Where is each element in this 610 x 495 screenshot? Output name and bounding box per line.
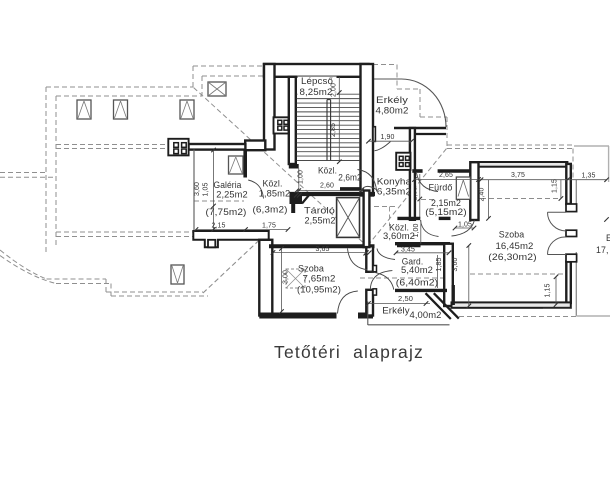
svg-text:2,50: 2,50 [398,296,413,303]
svg-text:E: E [606,233,610,243]
svg-text:4,00m2: 4,00m2 [410,310,442,320]
svg-text:1,15: 1,15 [545,283,552,297]
svg-text:7,65m2: 7,65m2 [303,274,336,284]
svg-text:2,00: 2,00 [331,83,338,97]
svg-text:2,60: 2,60 [320,183,334,190]
svg-text:Szoba: Szoba [499,230,525,240]
svg-text:2,6m2: 2,6m2 [338,173,362,183]
svg-text:1,35: 1,35 [581,173,595,180]
svg-text:2,55m2: 2,55m2 [305,216,336,226]
svg-text:17,: 17, [596,245,609,255]
svg-text:2,15: 2,15 [211,222,225,229]
svg-text:3,60: 3,60 [452,257,459,271]
svg-text:Lépcső: Lépcső [301,75,333,86]
svg-text:6,35m2: 6,35m2 [377,187,412,197]
svg-text:Közl.: Közl. [263,179,283,189]
svg-text:Fürdő: Fürdő [429,183,453,193]
svg-text:2,40: 2,40 [479,187,486,201]
svg-text:2,25m2: 2,25m2 [216,190,248,200]
svg-text:3,75: 3,75 [511,172,525,179]
svg-text:1,05: 1,05 [203,182,210,196]
svg-text:4,80m2: 4,80m2 [376,106,409,116]
svg-text:16,45m2: 16,45m2 [496,241,534,251]
svg-text:3,60m2: 3,60m2 [383,231,415,241]
svg-text:Galéria: Galéria [214,180,243,190]
svg-text:(10,95m2): (10,95m2) [297,285,341,295]
svg-text:2,85: 2,85 [330,123,337,137]
svg-text:1,85m2: 1,85m2 [259,189,291,199]
svg-text:(7,75m2): (7,75m2) [206,207,247,217]
svg-text:(5,15m2): (5,15m2) [425,207,467,217]
svg-text:3,65: 3,65 [315,246,329,253]
svg-text:1,00: 1,00 [413,223,420,237]
svg-text:1,90: 1,90 [380,134,394,141]
svg-text:Konyha: Konyha [377,177,412,187]
svg-text:Szoba: Szoba [298,264,325,274]
svg-text:3,00: 3,00 [282,270,289,284]
svg-text:Tároló: Tároló [304,206,335,216]
svg-text:Erkély: Erkély [382,306,410,316]
svg-text:Közl.: Közl. [318,166,337,176]
svg-text:1,75: 1,75 [262,222,276,229]
svg-text:1,15: 1,15 [552,179,559,193]
svg-text:3,60: 3,60 [194,182,201,196]
svg-text:5,40m2: 5,40m2 [401,265,433,275]
svg-text:(6,3m2): (6,3m2) [253,205,288,215]
svg-text:(26,30m2): (26,30m2) [488,252,537,262]
svg-text:1,00: 1,00 [298,170,305,184]
svg-text:3,45: 3,45 [401,247,415,254]
svg-text:(6,40m2): (6,40m2) [396,278,439,288]
svg-text:2,65: 2,65 [439,172,453,179]
svg-text:1,85: 1,85 [436,257,443,271]
svg-text:Erkély: Erkély [376,95,408,105]
svg-text:1,05: 1,05 [458,222,472,229]
svg-text:8,25m2: 8,25m2 [300,86,333,97]
